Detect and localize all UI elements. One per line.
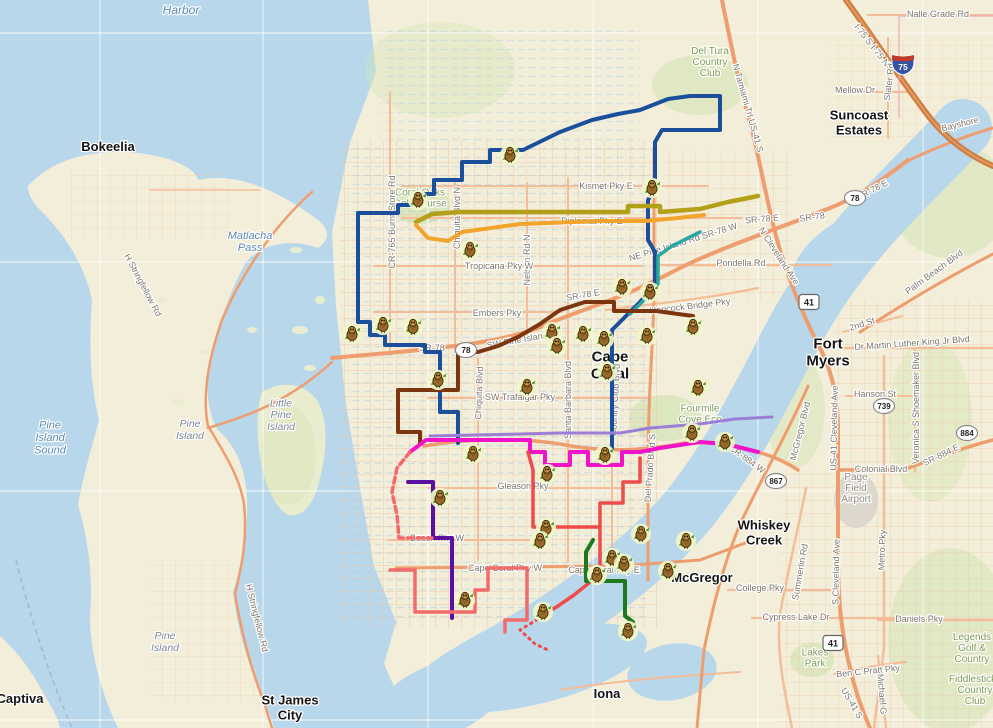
wildlife-marker[interactable] [614,554,634,574]
label-tropicana-pky-w: Tropicana Pky W [465,261,534,271]
state-shield-78: 78 [845,191,866,206]
label-mellow-dr: Mellow Dr [835,85,875,95]
label-bokeelia: Bokeelia [81,139,135,154]
us-shield-41: 41 [823,636,843,651]
wildlife-marker[interactable] [373,315,393,335]
wildlife-marker[interactable] [631,524,651,544]
wildlife-marker[interactable] [587,565,607,585]
state-shield-867: 867 [766,474,787,489]
label-harbor: Harbor [163,3,201,17]
wildlife-marker[interactable] [403,317,423,337]
wildlife-marker[interactable] [640,282,660,302]
wildlife-marker[interactable] [533,602,553,622]
svg-text:78: 78 [462,346,471,355]
label-cypress-lake-dr: Cypress Lake Dr [762,612,829,622]
label-embers-pky: Embers Pky [473,308,522,318]
state-shield-884: 884 [957,426,978,441]
label-suncoast-estates: SuncoastEstates [830,107,889,137]
wildlife-marker[interactable] [342,324,362,344]
svg-text:867: 867 [769,477,783,486]
wildlife-marker[interactable] [595,445,615,465]
svg-text:41: 41 [804,298,814,308]
us-shield-41: 41 [799,295,819,310]
svg-text:884: 884 [960,429,974,438]
wildlife-marker[interactable] [715,432,735,452]
wildlife-marker[interactable] [517,377,537,397]
label-kismet-pky-e: Kismet Pky E [579,181,633,191]
label-gleason-pky: Gleason Pky [497,481,549,491]
wildlife-marker[interactable] [430,488,450,508]
map-canvas[interactable]: BokeeliaSuncoastEstatesFortMyersCapeCora… [0,0,993,728]
wildlife-marker[interactable] [683,317,703,337]
svg-text:78: 78 [851,194,860,203]
label-nelson-rd-n: Nelson Rd N [522,234,532,285]
label-s-cleveland-ave: S Cleveland Ave [830,539,841,605]
wildlife-marker[interactable] [530,531,550,551]
wildlife-marker[interactable] [547,336,567,356]
label-colonial-blvd: Colonial Blvd [855,464,908,474]
wildlife-marker[interactable] [688,378,708,398]
wildlife-marker[interactable] [455,590,475,610]
state-shield-78: 78 [456,343,477,358]
wildlife-marker[interactable] [594,329,614,349]
wildlife-marker[interactable] [460,240,480,260]
label-legends-golf-country: LegendsGolf &Country [953,631,991,664]
label-santa-barbara-blvd: Santa Barbara Blvd [563,361,573,439]
label-daniels-pky: Daniels Pky [895,614,943,624]
wildlife-marker[interactable] [408,190,428,210]
wildlife-marker[interactable] [428,370,448,390]
label-us-41-cleveland-ave: US-41 Cleveland Ave [828,385,839,471]
wildlife-marker[interactable] [597,362,617,382]
wildlife-marker[interactable] [658,561,678,581]
label-college-pky: College Pky [736,583,785,593]
label-pondella-rd: Pondella Rd [716,258,765,268]
wildlife-marker[interactable] [637,326,657,346]
label-chiquita-blvd: Chiquita Blvd [473,366,485,419]
wildlife-marker[interactable] [537,464,557,484]
label-mcgregor: McGregor [671,570,732,585]
wildlife-marker[interactable] [676,531,696,551]
label-page-field-airport: PageFieldAirport [841,471,871,504]
wildlife-marker[interactable] [463,444,483,464]
state-shield-739: 739 [874,399,895,414]
wildlife-marker[interactable] [642,178,662,198]
label-iona: Iona [594,686,621,701]
label-hanson-st: Hanson St [854,389,897,399]
wildlife-marker[interactable] [682,423,702,443]
map-viewport[interactable]: BokeeliaSuncoastEstatesFortMyersCapeCora… [0,0,993,728]
svg-text:41: 41 [828,639,838,649]
label-cr-765-burnt-store-rd: CR-765 Burnt Store Rd [387,175,397,268]
wildlife-marker[interactable] [612,277,632,297]
label-nalle-grade-rd: Nalle Grade Rd [907,9,969,19]
wildlife-marker[interactable] [500,145,520,165]
label-metro-pky: Metro Pky [876,529,887,570]
svg-text:739: 739 [877,402,891,411]
label-veronica-s-shoemaker-blvd: Veronica S Shoemaker Blvd [911,352,921,464]
wildlife-marker[interactable] [573,324,593,344]
wildlife-marker[interactable] [618,621,638,641]
svg-text:75: 75 [898,62,908,72]
label-captiva: Captiva [0,691,44,706]
